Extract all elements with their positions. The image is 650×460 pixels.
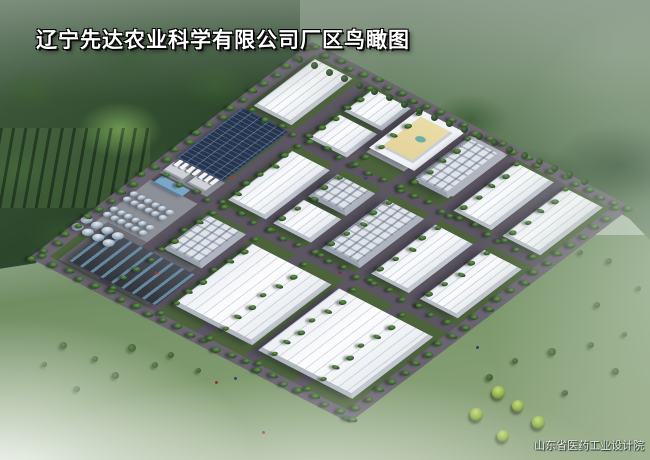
tree: [251, 236, 260, 242]
tree: [349, 287, 358, 293]
tree: [294, 144, 303, 150]
design-institute-credit: 山东省医药工业设计院: [534, 437, 644, 453]
birdseye-rendering: 辽宁先达农业科学有限公司厂区鸟瞰图 山东省医药工业设计院: [0, 0, 650, 460]
tree: [398, 312, 407, 318]
page-title: 辽宁先达农业科学有限公司厂区鸟瞰图: [36, 24, 466, 54]
tree: [300, 262, 309, 268]
